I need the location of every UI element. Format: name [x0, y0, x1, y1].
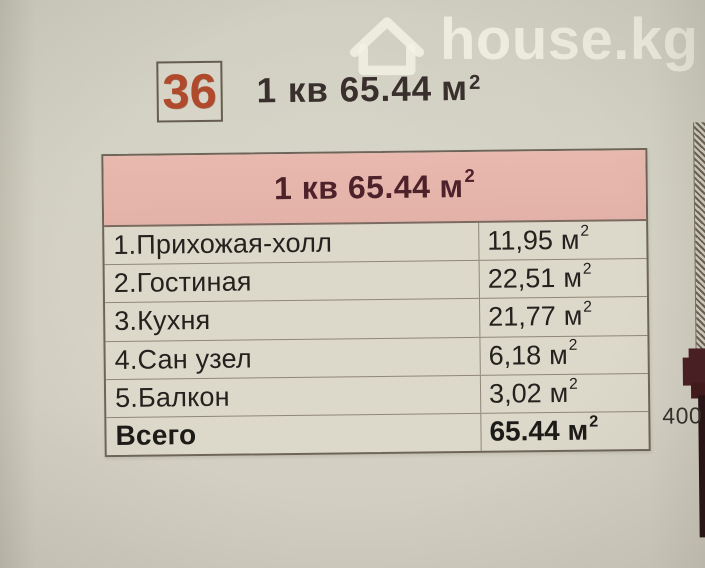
area-sup: 2 — [589, 413, 598, 432]
watermark: house.kg — [344, 2, 699, 78]
table-row-total: Всего 65.44м2 — [106, 411, 648, 455]
area-unit: м — [564, 301, 583, 332]
wall-section — [683, 357, 705, 385]
room-area: 3,02м2 — [480, 374, 648, 413]
room-label: 2.Гостиная — [105, 261, 479, 302]
unit-number: 36 — [162, 63, 217, 120]
area-unit: м — [561, 225, 580, 256]
area-sup: 2 — [583, 261, 592, 279]
area-sup: 2 — [569, 337, 578, 355]
dimension-label: 400 — [662, 402, 702, 429]
photo-of-floorplan-table: house.kg 36 1 кв 65.44м2 1 кв 65.44м2 1.… — [0, 0, 705, 568]
area-unit: м — [563, 263, 582, 294]
area-number: 3,02 — [489, 378, 542, 410]
table-header-unit: м — [439, 168, 464, 205]
room-label: 5.Балкон — [106, 376, 480, 417]
area-unit: м — [567, 415, 588, 447]
area-number: 21,77 — [488, 301, 556, 333]
unit-number-badge: 36 — [156, 61, 223, 123]
room-area: 21,77м2 — [479, 297, 647, 336]
total-area: 65.44м2 — [480, 412, 648, 451]
area-unit: м — [549, 378, 568, 409]
area-number: 6,18 — [488, 340, 541, 372]
room-label: 4.Сан узел — [105, 337, 479, 378]
area-sup: 2 — [583, 299, 592, 317]
watermark-brand-text: house.kg — [440, 2, 699, 78]
area-unit: м — [549, 339, 568, 370]
house-icon — [344, 2, 430, 78]
area-number: 65.44 — [489, 415, 559, 448]
room-area: 22,51м2 — [479, 259, 647, 298]
area-sup: 2 — [580, 223, 589, 241]
table-row-bathroom: 4.Сан узел 6,18м2 — [105, 334, 647, 378]
table-header-sup: 2 — [464, 165, 475, 187]
scanned-content: 36 1 кв 65.44м2 1 кв 65.44м2 1.Прихожая-… — [0, 0, 705, 568]
room-area: 11,95м2 — [478, 221, 646, 260]
area-table-header: 1 кв 65.44м2 — [103, 150, 646, 227]
area-sup: 2 — [569, 375, 578, 393]
table-row-hallway: 1.Прихожая-холл 11,95м2 — [104, 221, 646, 264]
room-label: 1.Прихожая-холл — [104, 223, 478, 264]
area-number: 11,95 — [487, 225, 553, 257]
room-area: 6,18м2 — [479, 335, 647, 374]
total-label: Всего — [106, 414, 480, 455]
room-label: 3.Кухня — [105, 299, 479, 340]
area-number: 22,51 — [488, 263, 556, 295]
table-row-livingroom: 2.Гостиная 22,51м2 — [105, 258, 647, 302]
area-table: 1 кв 65.44м2 1.Прихожая-холл 11,95м2 2.Г… — [101, 148, 650, 457]
table-header-text: 1 кв 65.44 — [274, 168, 431, 207]
table-row-kitchen: 3.Кухня 21,77м2 — [105, 296, 647, 340]
area-table-rows: 1.Прихожая-холл 11,95м2 2.Гостиная 22,51… — [104, 221, 649, 455]
hatched-wall-segment — [693, 122, 705, 354]
table-row-balcony: 5.Балкон 3,02м2 — [106, 373, 648, 417]
